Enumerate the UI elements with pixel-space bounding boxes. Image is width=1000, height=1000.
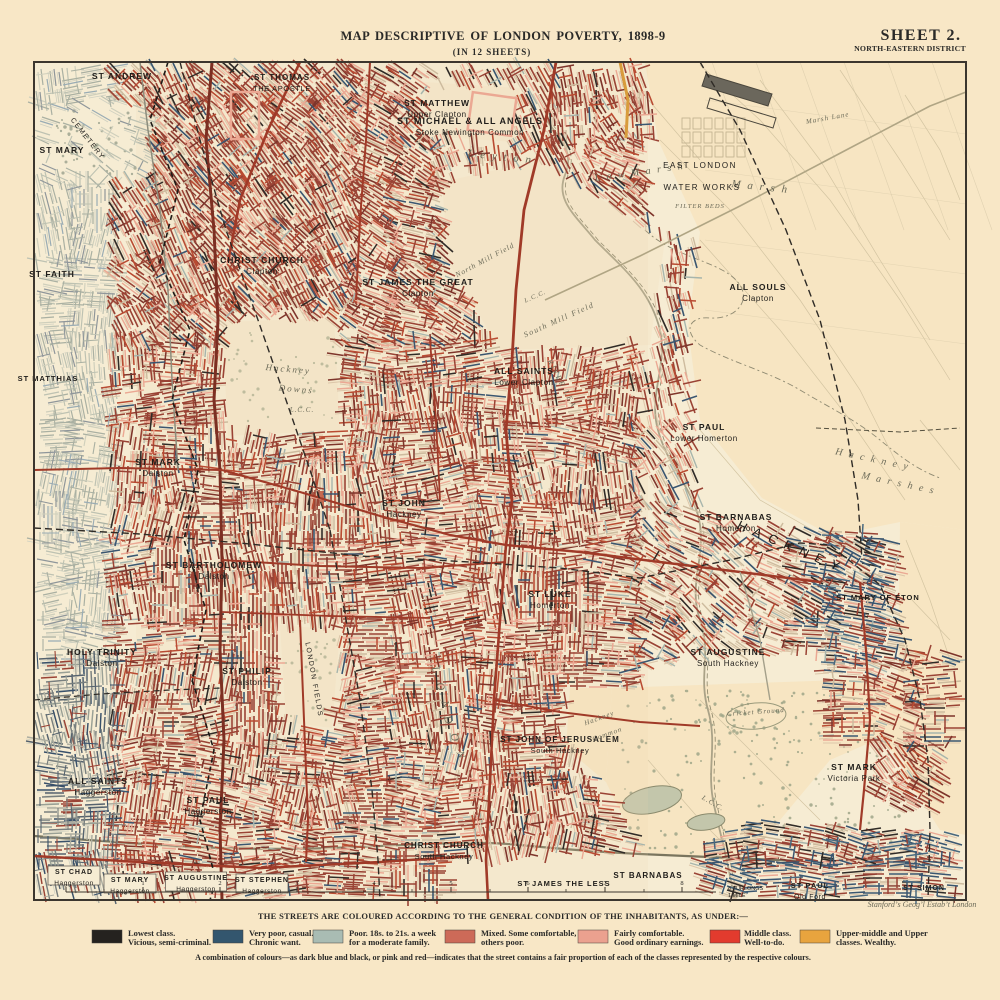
svg-text:for a moderate family.: for a moderate family. (349, 937, 430, 947)
svg-text:WATER WORKS: WATER WORKS (664, 183, 741, 192)
svg-text:ST MARY OF ETON: ST MARY OF ETON (836, 593, 920, 602)
svg-text:8: 8 (680, 880, 683, 887)
svg-text:ST AUGUSTINE: ST AUGUSTINE (691, 647, 766, 657)
svg-text:Lower Clapton: Lower Clapton (494, 378, 553, 387)
svg-text:Stanfordʼs Geogʼl Estabʼt Lond: Stanfordʼs Geogʼl Estabʼt London (868, 900, 977, 909)
svg-text:ST ANDREW: ST ANDREW (92, 71, 152, 81)
svg-text:ST LUKE: ST LUKE (528, 589, 571, 599)
svg-text:ST MARK: ST MARK (831, 762, 877, 772)
svg-text:ALL SAINTS: ALL SAINTS (494, 366, 554, 376)
svg-text:1 MILE: 1 MILE (728, 893, 746, 899)
svg-text:ST CHAD: ST CHAD (55, 869, 93, 876)
svg-text:CHRIST CHURCH: CHRIST CHURCH (404, 841, 484, 850)
svg-text:3: 3 (295, 880, 298, 887)
svg-text:classes. Wealthy.: classes. Wealthy. (836, 937, 896, 947)
svg-text:ST PAUL: ST PAUL (683, 422, 726, 432)
svg-text:Haggerston: Haggerston (74, 788, 121, 797)
svg-text:Dalston: Dalston (198, 572, 229, 581)
svg-text:ST MARK: ST MARK (135, 457, 181, 467)
svg-text:SHEET 2.: SHEET 2. (880, 27, 961, 44)
svg-text:ST PAUL: ST PAUL (791, 881, 830, 890)
svg-text:MAP DESCRIPTIVE OF LONDON POVE: MAP DESCRIPTIVE OF LONDON POVERTY, 1898-… (340, 29, 665, 43)
svg-text:FILTER BEDS: FILTER BEDS (674, 203, 725, 210)
svg-text:ST STEPHEN: ST STEPHEN (235, 877, 289, 884)
svg-text:South Hackney: South Hackney (415, 852, 474, 861)
svg-text:ST PAUL: ST PAUL (187, 795, 230, 805)
svg-text:NORTH-EASTERN DISTRICT: NORTH-EASTERN DISTRICT (854, 44, 966, 53)
svg-text:CHRIST CHURCH: CHRIST CHURCH (220, 255, 304, 265)
svg-text:Clapton: Clapton (742, 294, 774, 303)
svg-text:Victoria Park: Victoria Park (827, 774, 880, 783)
svg-text:South Hackney: South Hackney (697, 659, 759, 668)
svg-text:ST BARNABAS: ST BARNABAS (613, 871, 682, 880)
svg-text:THE APOSTLE: THE APOSTLE (253, 84, 311, 93)
svg-text:(IN 12 SHEETS): (IN 12 SHEETS) (453, 47, 532, 57)
svg-text:Haggerston: Haggerston (184, 807, 231, 816)
svg-text:ST MICHAEL & ALL ANGELS: ST MICHAEL & ALL ANGELS (397, 116, 543, 126)
svg-text:Hackney: Hackney (386, 510, 421, 519)
svg-text:Lower Homerton: Lower Homerton (670, 434, 738, 443)
svg-text:ST BARNABAS: ST BARNABAS (700, 512, 773, 522)
svg-text:ST FAITH: ST FAITH (29, 269, 75, 279)
svg-text:Clapton: Clapton (402, 289, 434, 298)
svg-text:Clapton: Clapton (246, 267, 278, 276)
svg-text:Stoke Newington Common: Stoke Newington Common (416, 128, 524, 137)
svg-text:Chronic want.: Chronic want. (249, 937, 301, 947)
svg-text:ST BARTHOLOMEW: ST BARTHOLOMEW (166, 560, 262, 570)
svg-text:others poor.: others poor. (481, 937, 524, 947)
svg-text:Homerton: Homerton (530, 601, 570, 610)
svg-text:ST JAMES THE LESS: ST JAMES THE LESS (517, 879, 610, 888)
svg-text:Good ordinary earnings.: Good ordinary earnings. (614, 937, 704, 947)
svg-text:ST MATTHEW: ST MATTHEW (404, 98, 470, 108)
svg-text:ST PHILIP: ST PHILIP (222, 666, 272, 676)
svg-text:ALL SOULS: ALL SOULS (729, 282, 786, 292)
svg-text:ST THOMAS: ST THOMAS (254, 73, 310, 82)
svg-text:South Hackney: South Hackney (531, 746, 590, 755)
svg-text:A combination of colours—as da: A combination of colours—as dark blue an… (195, 953, 811, 962)
svg-text:Dalston: Dalston (142, 469, 173, 478)
svg-text:ALL SAINTS: ALL SAINTS (68, 776, 128, 786)
svg-text:ST SIMON: ST SIMON (903, 885, 945, 892)
svg-text:ST MARY: ST MARY (40, 145, 85, 155)
svg-text:2: 2 (218, 880, 221, 887)
svg-text:HOLY TRINITY: HOLY TRINITY (67, 647, 137, 657)
svg-text:THE STREETS ARE COLOURED ACCOR: THE STREETS ARE COLOURED ACCORDING TO TH… (258, 911, 748, 921)
svg-text:Haggerston: Haggerston (54, 880, 94, 887)
svg-text:Vicious, semi-criminal.: Vicious, semi-criminal. (128, 937, 211, 947)
svg-text:1: 1 (141, 880, 144, 887)
svg-text:L.C.C.: L.C.C. (289, 406, 314, 414)
svg-text:ST MATTHIAS: ST MATTHIAS (18, 374, 79, 383)
svg-text:Well-to-do.: Well-to-do. (744, 937, 784, 947)
svg-text:8 FURLONGS: 8 FURLONGS (728, 886, 763, 892)
svg-text:ST JOHN: ST JOHN (382, 498, 426, 508)
svg-text:EAST LONDON: EAST LONDON (663, 161, 737, 170)
svg-text:Dalston: Dalston (86, 659, 117, 668)
svg-text:Dalston: Dalston (231, 678, 262, 687)
svg-text:5: 5 (449, 880, 452, 887)
